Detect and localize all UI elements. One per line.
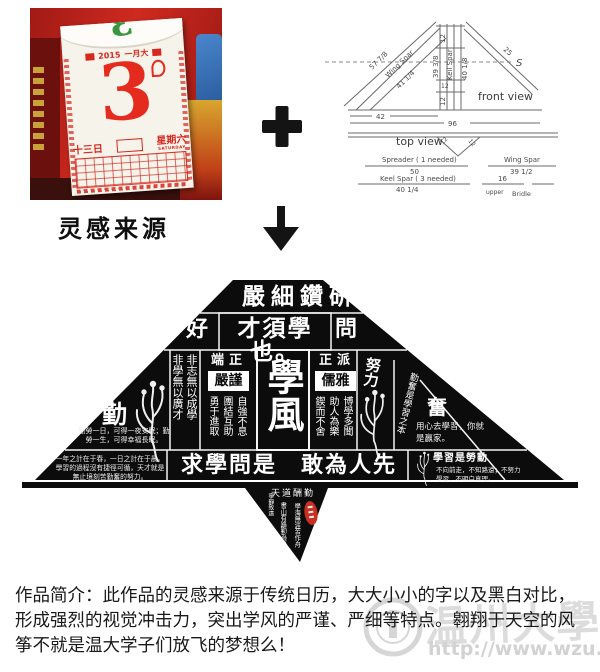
dim-keel-spar: Keil Spar — [446, 49, 454, 80]
kite-tail-motto: 天道酬勤 — [271, 490, 315, 499]
kite-panel-right-header: 正派 — [311, 354, 363, 367]
photo-gold-text-strip — [33, 66, 44, 150]
kite-top-banner: 嚴細鑽研 — [225, 286, 375, 309]
top-view-label: top view — [396, 135, 443, 148]
dim-post-mid: 12 — [441, 83, 449, 90]
calendar-date-label: 十三日 — [72, 140, 103, 157]
kite-bottom-banner: 求學問是 敢為人先 — [170, 455, 408, 477]
kite-artwork: 嚴細鑽研 好 才須學也。 問 非志無以成學 非學無以廣才 端正 嚴謹 自強不息 … — [0, 255, 600, 590]
kite-panel-right-col3: 鍥而不舍 — [313, 396, 323, 448]
kite-row2-left: 好 — [186, 319, 208, 341]
work-description: 作品简介：此作品的灵感来源于传统日历，大大小小的字以及黑白对比，形成强烈的视觉冲… — [15, 584, 587, 659]
kite-tail-col3: 寧靜致遠 — [266, 493, 272, 519]
calendar-day-number: 3 — [62, 50, 189, 136]
kite-row2-right: 問 — [335, 319, 357, 341]
calendar-peek-number: 3 — [105, 18, 136, 44]
part-bridle-len: 16 — [498, 175, 507, 183]
kite-tail-col1: 學海無涯苦作舟 — [293, 503, 299, 553]
poster-canvas: 3 2015 一月大 3 十三日 星期六 SATURDAY 灵感来源 — [0, 0, 600, 672]
kite-right-wing-char: 奮 — [427, 397, 447, 417]
dim-base-left: 42 — [376, 113, 385, 121]
photo-blue-cloth — [196, 34, 222, 104]
part-keel-len: 40 1/4 — [396, 186, 419, 194]
kite-left-wing-char: 勤 — [102, 402, 127, 427]
kite-left-quote-col1: 非志無以成學 — [186, 354, 197, 448]
part-wing-name: Wing Spar — [504, 156, 540, 164]
kite-panel-left-col2: 團結互助 — [221, 396, 231, 448]
kite-panel-right-col2: 助人為樂 — [327, 396, 337, 448]
dim-left-outer: 57 7/8 — [368, 50, 390, 71]
kite-panel-right-col1: 博學多聞 — [341, 396, 351, 448]
kite-bottom-left-quote: 一年之計在于春，一日之計在于晨。學習的過程沒有捷徑可循，天才就是無止境刻苦勤奮的… — [54, 455, 166, 483]
calendar-weekday-wrap: 星期六 SATURDAY — [156, 134, 187, 150]
inspiration-photo: 3 2015 一月大 3 十三日 星期六 SATURDAY — [30, 8, 222, 200]
dim-post-top: 12 — [439, 34, 447, 43]
part-spreader-name: Spreader ( 1 needed) — [382, 156, 457, 164]
dim-post-left: 39 3/8 — [432, 56, 440, 78]
dim-right-diag: 25 — [502, 46, 514, 58]
part-bridle-upper: upper — [486, 189, 504, 196]
part-bridle-label: Bridle — [512, 190, 531, 198]
calendar-page: 3 2015 一月大 3 十三日 星期六 SATURDAY — [60, 18, 194, 196]
kite-tail-col2: 書山有路勤為徑 — [279, 502, 285, 552]
front-view-label: front view — [478, 90, 533, 103]
calendar-lunar-box — [116, 138, 143, 153]
calendar-weekday-en: SATURDAY — [158, 145, 186, 151]
inspiration-label: 灵感来源 — [58, 209, 170, 244]
dim-post-bottom: 12 — [439, 97, 447, 106]
plus-icon — [262, 106, 304, 148]
kite-panel-left-col1: 自強不息 — [235, 396, 245, 448]
kite-bottom-right-quote: 不向前走，不知路遠；不努力學習，不明白真理。 — [436, 466, 522, 484]
kite-left-quote-col2: 非學無以廣才 — [172, 354, 183, 448]
down-arrow-icon — [261, 206, 301, 253]
kite-right-wing-quote: 用心去學習，你就是贏家。 — [416, 422, 488, 446]
dim-post-right: 40 1/8 — [461, 58, 469, 80]
kite-bottom-right-title: 學習是勞動 — [433, 454, 488, 464]
kite-panel-left-col3: 勇于進取 — [207, 396, 217, 448]
kite-left-wing-quote: 勤勞一日，可得一夜安眠；勤勞一生，可得幸福長眠。 — [76, 427, 172, 446]
kite-panel-left-boxed: 嚴謹 — [208, 371, 249, 391]
dim-base-total: 96 — [448, 120, 457, 128]
part-keel-name: Keel Spar ( 3 needed) — [380, 175, 456, 183]
kite-panel-right-boxed: 儒雅 — [315, 371, 356, 391]
kite-diagram: 57 7/8 Wing Spar 41 1/4 25 12 39 3/8 Kei… — [320, 12, 598, 210]
dim-left-inner: 41 1/4 — [395, 69, 417, 91]
kite-panel-left-header: 端正 — [203, 354, 255, 367]
kite-center-main: 學風 — [264, 358, 301, 446]
side-label: S — [516, 58, 523, 69]
part-wing-len: 39 1/2 — [510, 168, 532, 176]
